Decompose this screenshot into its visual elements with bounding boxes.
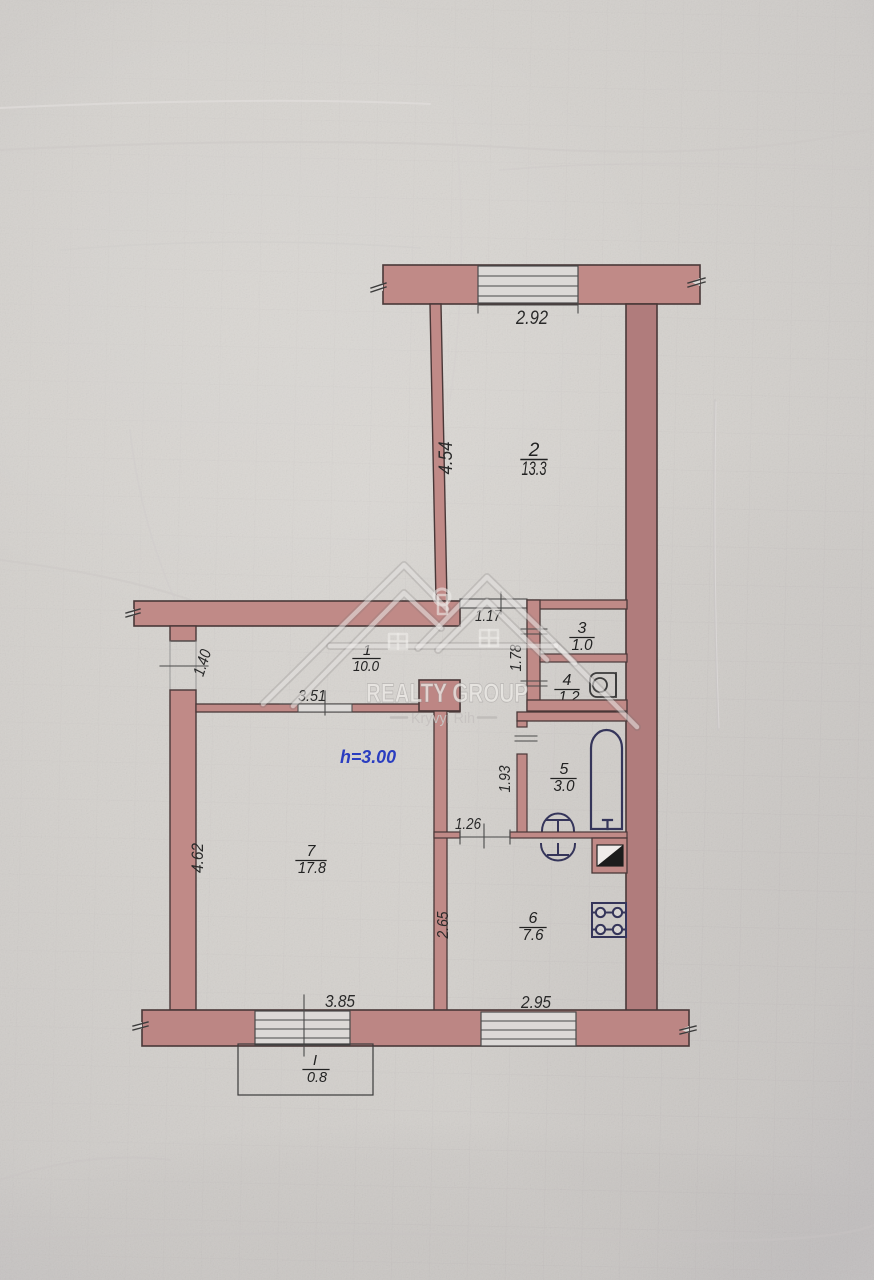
svg-text:7: 7 [307,843,317,860]
svg-text:5: 5 [560,761,569,778]
svg-text:0.8: 0.8 [307,1069,328,1086]
svg-text:1.0: 1.0 [572,637,593,654]
svg-text:7.6: 7.6 [523,927,544,944]
svg-text:2.65: 2.65 [435,911,452,939]
svg-text:4.62: 4.62 [188,843,207,873]
svg-text:h=3.00: h=3.00 [340,747,396,767]
svg-text:1.26: 1.26 [455,816,481,833]
svg-text:2.95: 2.95 [520,992,551,1012]
svg-text:3.0: 3.0 [554,778,575,795]
svg-text:3.85: 3.85 [325,991,355,1011]
svg-text:10.0: 10.0 [353,658,380,675]
svg-text:6: 6 [529,910,538,927]
svg-text:Kryvyi Rih: Kryvyi Rih [411,710,475,727]
svg-text:1.93: 1.93 [497,765,514,792]
svg-text:REALTY GROUP: REALTY GROUP [366,678,528,708]
svg-text:13.3: 13.3 [522,459,547,480]
svg-text:2.92: 2.92 [515,308,548,329]
svg-text:2: 2 [528,440,540,461]
svg-text:4.54: 4.54 [436,442,457,475]
svg-text:I: I [313,1052,317,1069]
svg-text:4: 4 [563,672,572,689]
svg-text:3: 3 [578,620,587,637]
svg-text:17.8: 17.8 [298,860,326,877]
